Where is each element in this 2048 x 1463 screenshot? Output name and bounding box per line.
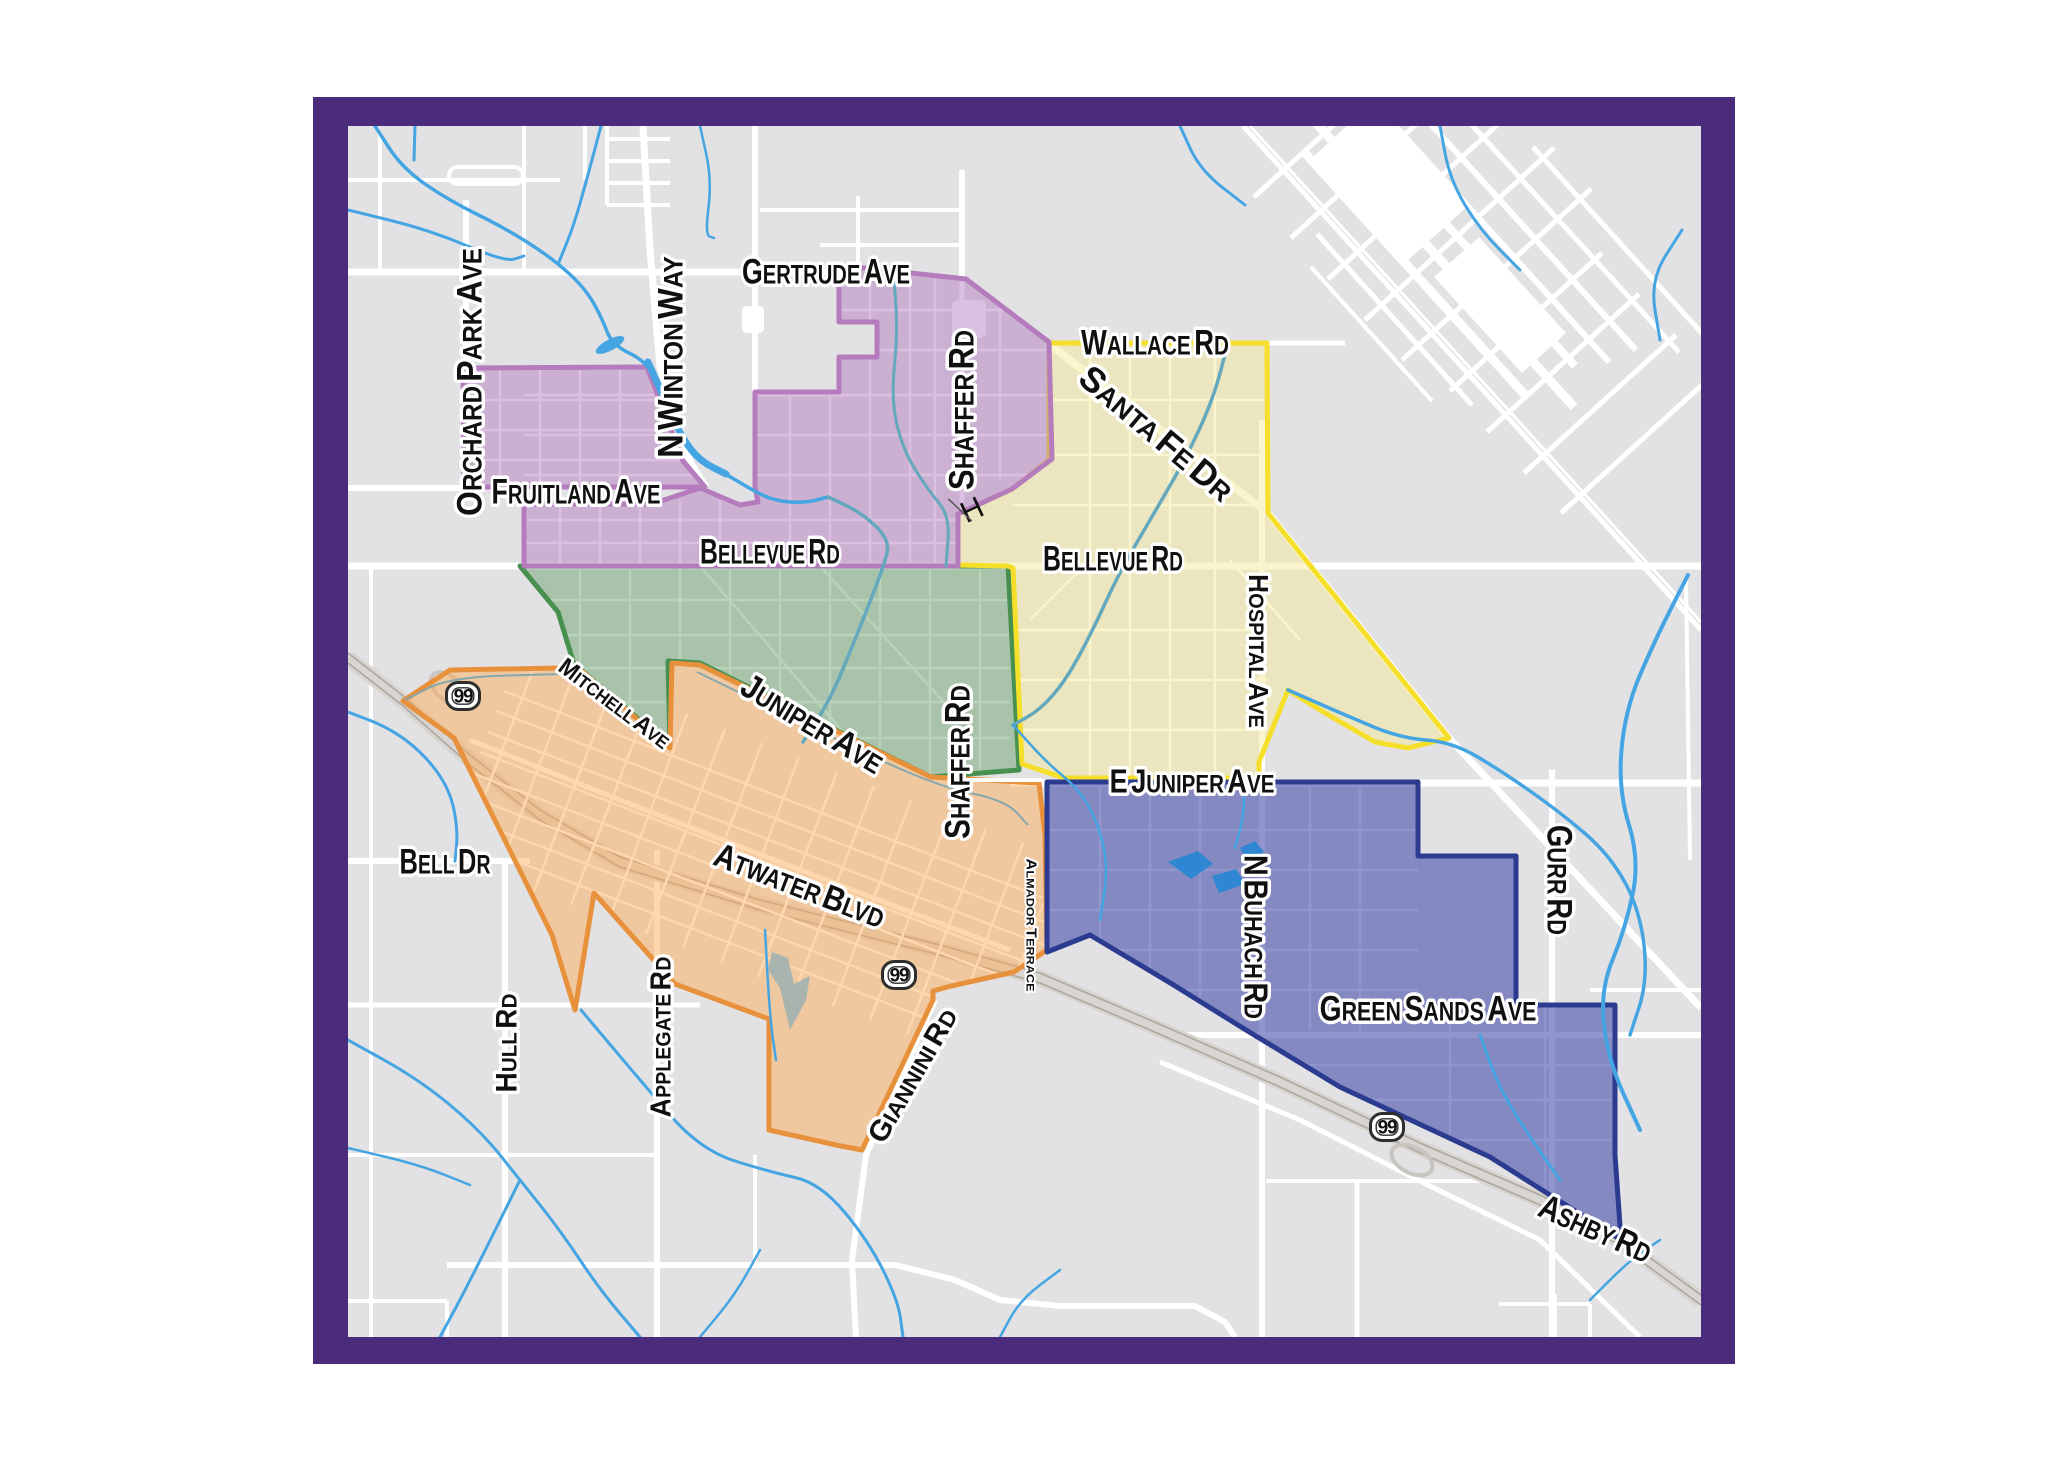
svg-text:99: 99	[1378, 1118, 1397, 1139]
svg-text:E JUNIPER AVE: E JUNIPER AVE	[1110, 764, 1275, 800]
svg-text:99: 99	[890, 966, 909, 987]
svg-text:ALMADOR TERRACE: ALMADOR TERRACE	[1023, 858, 1039, 991]
svg-text:99: 99	[454, 687, 473, 708]
